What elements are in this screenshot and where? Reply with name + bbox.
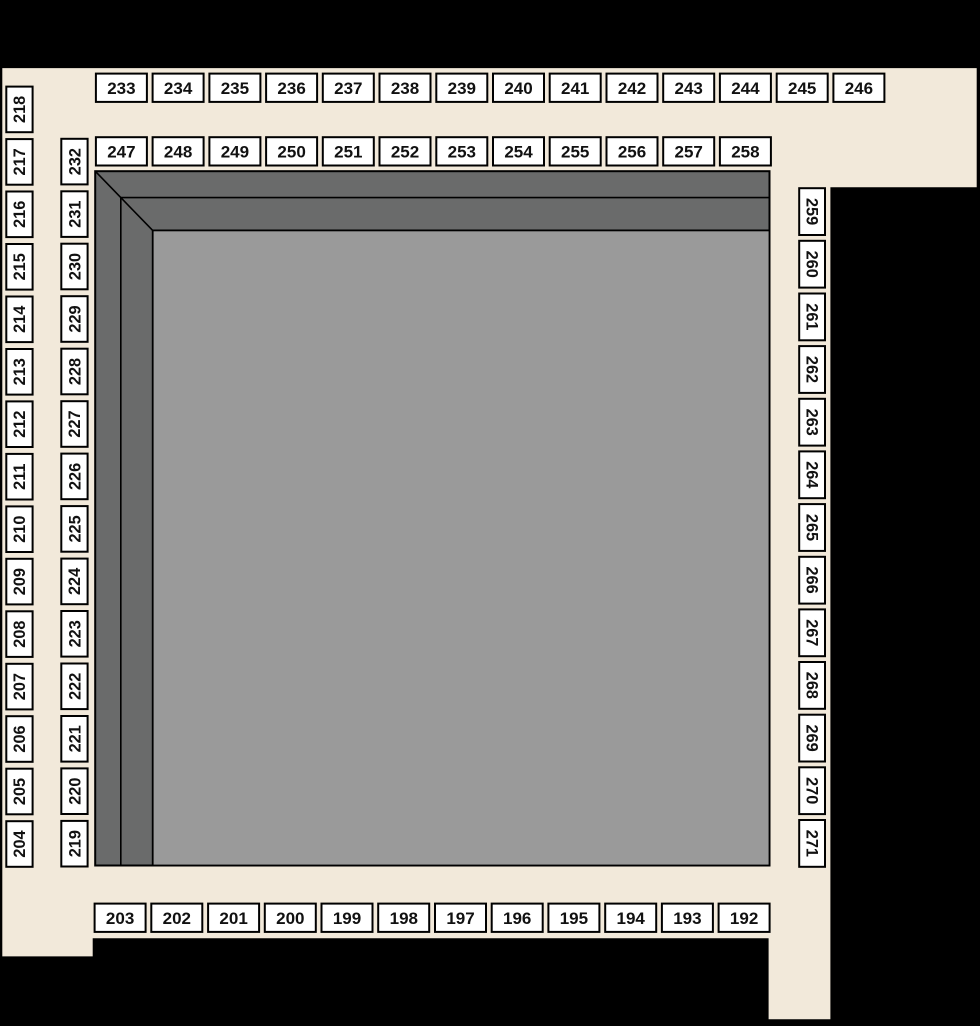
- svg-text:266: 266: [802, 567, 820, 594]
- svg-text:267: 267: [802, 619, 820, 646]
- svg-text:196: 196: [503, 909, 531, 928]
- svg-text:271: 271: [802, 830, 820, 857]
- svg-text:204: 204: [11, 830, 29, 857]
- svg-text:193: 193: [673, 909, 701, 928]
- svg-text:225: 225: [66, 515, 84, 542]
- svg-text:241: 241: [561, 79, 589, 98]
- svg-text:209: 209: [11, 568, 29, 595]
- svg-text:224: 224: [66, 568, 84, 595]
- svg-text:249: 249: [221, 142, 249, 161]
- svg-text:262: 262: [802, 356, 820, 383]
- svg-text:198: 198: [390, 909, 418, 928]
- svg-text:217: 217: [11, 148, 29, 175]
- svg-text:257: 257: [675, 142, 703, 161]
- svg-text:231: 231: [66, 201, 84, 228]
- svg-text:259: 259: [802, 198, 820, 225]
- svg-text:230: 230: [66, 253, 84, 280]
- svg-text:242: 242: [618, 79, 646, 98]
- svg-text:202: 202: [163, 909, 191, 928]
- svg-text:223: 223: [66, 620, 84, 647]
- svg-text:248: 248: [164, 142, 192, 161]
- svg-text:229: 229: [66, 305, 84, 332]
- svg-text:218: 218: [11, 96, 29, 123]
- svg-text:203: 203: [106, 909, 134, 928]
- svg-text:260: 260: [802, 251, 820, 278]
- svg-text:236: 236: [277, 79, 305, 98]
- svg-text:208: 208: [11, 621, 29, 648]
- svg-text:240: 240: [504, 79, 532, 98]
- svg-text:233: 233: [107, 79, 135, 98]
- svg-text:226: 226: [66, 463, 84, 490]
- svg-text:207: 207: [11, 673, 29, 700]
- svg-text:215: 215: [11, 253, 29, 280]
- svg-text:227: 227: [66, 410, 84, 437]
- svg-text:269: 269: [802, 725, 820, 752]
- svg-text:264: 264: [802, 461, 820, 488]
- svg-text:212: 212: [11, 411, 29, 438]
- svg-text:254: 254: [504, 142, 533, 161]
- svg-text:213: 213: [11, 358, 29, 385]
- svg-text:192: 192: [730, 909, 758, 928]
- svg-text:235: 235: [221, 79, 249, 98]
- svg-text:220: 220: [66, 778, 84, 805]
- svg-text:263: 263: [802, 409, 820, 436]
- svg-text:210: 210: [11, 516, 29, 543]
- svg-text:251: 251: [334, 142, 362, 161]
- svg-text:255: 255: [561, 142, 589, 161]
- svg-text:219: 219: [66, 830, 84, 857]
- svg-text:234: 234: [164, 79, 193, 98]
- svg-text:232: 232: [66, 148, 84, 175]
- svg-text:270: 270: [802, 777, 820, 804]
- svg-text:205: 205: [11, 778, 29, 805]
- svg-text:245: 245: [788, 79, 816, 98]
- svg-text:239: 239: [448, 79, 476, 98]
- svg-text:268: 268: [802, 672, 820, 699]
- svg-text:222: 222: [66, 673, 84, 700]
- svg-text:194: 194: [617, 909, 646, 928]
- svg-text:211: 211: [11, 464, 29, 490]
- svg-text:250: 250: [277, 142, 305, 161]
- svg-text:256: 256: [618, 142, 646, 161]
- svg-text:238: 238: [391, 79, 419, 98]
- svg-text:252: 252: [391, 142, 419, 161]
- svg-text:197: 197: [446, 909, 474, 928]
- svg-text:228: 228: [66, 358, 84, 385]
- svg-text:199: 199: [333, 909, 361, 928]
- svg-text:201: 201: [219, 909, 247, 928]
- svg-text:214: 214: [11, 306, 29, 333]
- svg-text:246: 246: [845, 79, 873, 98]
- svg-text:244: 244: [731, 79, 760, 98]
- svg-text:261: 261: [802, 303, 820, 330]
- svg-text:195: 195: [560, 909, 588, 928]
- svg-text:221: 221: [66, 725, 84, 752]
- svg-text:237: 237: [334, 79, 362, 98]
- svg-text:265: 265: [802, 514, 820, 541]
- svg-text:258: 258: [731, 142, 759, 161]
- svg-text:243: 243: [675, 79, 703, 98]
- svg-text:253: 253: [448, 142, 476, 161]
- svg-text:247: 247: [107, 142, 135, 161]
- svg-text:200: 200: [276, 909, 304, 928]
- svg-text:206: 206: [11, 725, 29, 752]
- svg-text:216: 216: [11, 201, 29, 228]
